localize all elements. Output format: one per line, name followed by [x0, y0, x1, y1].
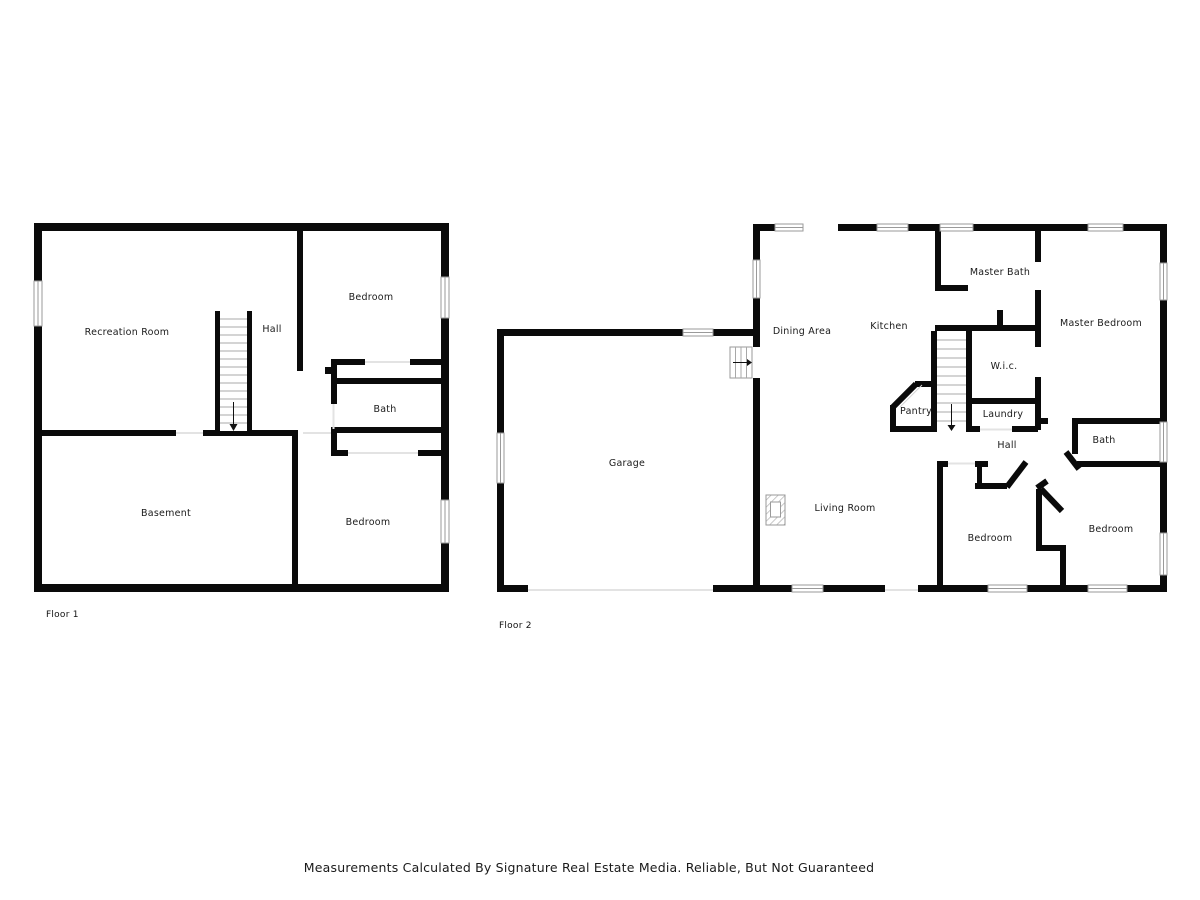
window-marker	[753, 260, 760, 298]
floor1-plan: Recreation Room Hall Bedroom Bath Baseme…	[34, 223, 449, 620]
fireplace-icon	[766, 495, 785, 525]
window-marker	[1160, 263, 1167, 300]
room-label-master-bedroom: Master Bedroom	[1060, 318, 1142, 329]
room-label-bath: Bath	[373, 404, 396, 415]
window-marker	[441, 277, 449, 318]
room-label-wic: W.i.c.	[991, 361, 1018, 372]
window-marker	[940, 224, 973, 231]
bedroom-right-door-jamb	[1037, 481, 1047, 488]
room-label-kitchen: Kitchen	[870, 321, 907, 332]
floor2-exterior-walls	[497, 224, 1167, 592]
window-marker	[497, 433, 504, 483]
window-marker	[1088, 224, 1123, 231]
room-label-bath2: Bath	[1092, 435, 1115, 446]
floor2-main-staircase	[931, 331, 972, 432]
floor1-title: Floor 1	[46, 610, 79, 620]
floor2-entry-steps	[730, 347, 752, 378]
room-label-bedroom-right: Bedroom	[1089, 524, 1134, 535]
floor1-staircase	[215, 311, 252, 431]
room-label-hall2: Hall	[997, 440, 1016, 451]
room-label-bedroom-top: Bedroom	[349, 292, 394, 303]
bath-door-leaf	[1066, 452, 1079, 469]
floor2-title: Floor 2	[499, 621, 532, 631]
window-marker	[775, 224, 803, 231]
window-marker	[792, 585, 823, 592]
floor2-room-labels: Dining Area Kitchen Master Bath Master B…	[609, 267, 1142, 544]
room-label-dining-area: Dining Area	[773, 326, 831, 337]
disclaimer-text: Measurements Calculated By Signature Rea…	[0, 860, 1178, 875]
room-label-master-bath: Master Bath	[970, 267, 1030, 278]
pantry-angled-wall	[893, 384, 916, 407]
room-label-bedroom-center: Bedroom	[968, 533, 1013, 544]
window-marker	[988, 585, 1027, 592]
bedroom-right-door-leaf	[1041, 489, 1062, 511]
room-label-pantry: Pantry	[900, 406, 932, 417]
room-label-living-room: Living Room	[814, 503, 875, 514]
window-marker	[1160, 422, 1167, 462]
room-label-garage: Garage	[609, 458, 645, 469]
floorplan-page: Recreation Room Hall Bedroom Bath Baseme…	[0, 0, 1200, 900]
room-label-hall: Hall	[262, 324, 281, 335]
floorplan-canvas: Recreation Room Hall Bedroom Bath Baseme…	[0, 0, 1200, 900]
room-label-laundry: Laundry	[983, 409, 1024, 420]
window-marker	[1160, 533, 1167, 575]
room-label-bedroom-bottom: Bedroom	[346, 517, 391, 528]
room-label-basement: Basement	[141, 508, 191, 519]
window-marker	[1088, 585, 1127, 592]
room-label-recreation-room: Recreation Room	[85, 327, 170, 338]
floor2-windows	[497, 224, 1167, 592]
bedroom-center-angled-wall	[1007, 462, 1026, 487]
window-marker	[34, 281, 42, 326]
window-marker	[877, 224, 908, 231]
floor2-plan: Dining Area Kitchen Master Bath Master B…	[497, 224, 1167, 631]
window-marker	[683, 329, 713, 336]
window-marker	[441, 500, 449, 543]
